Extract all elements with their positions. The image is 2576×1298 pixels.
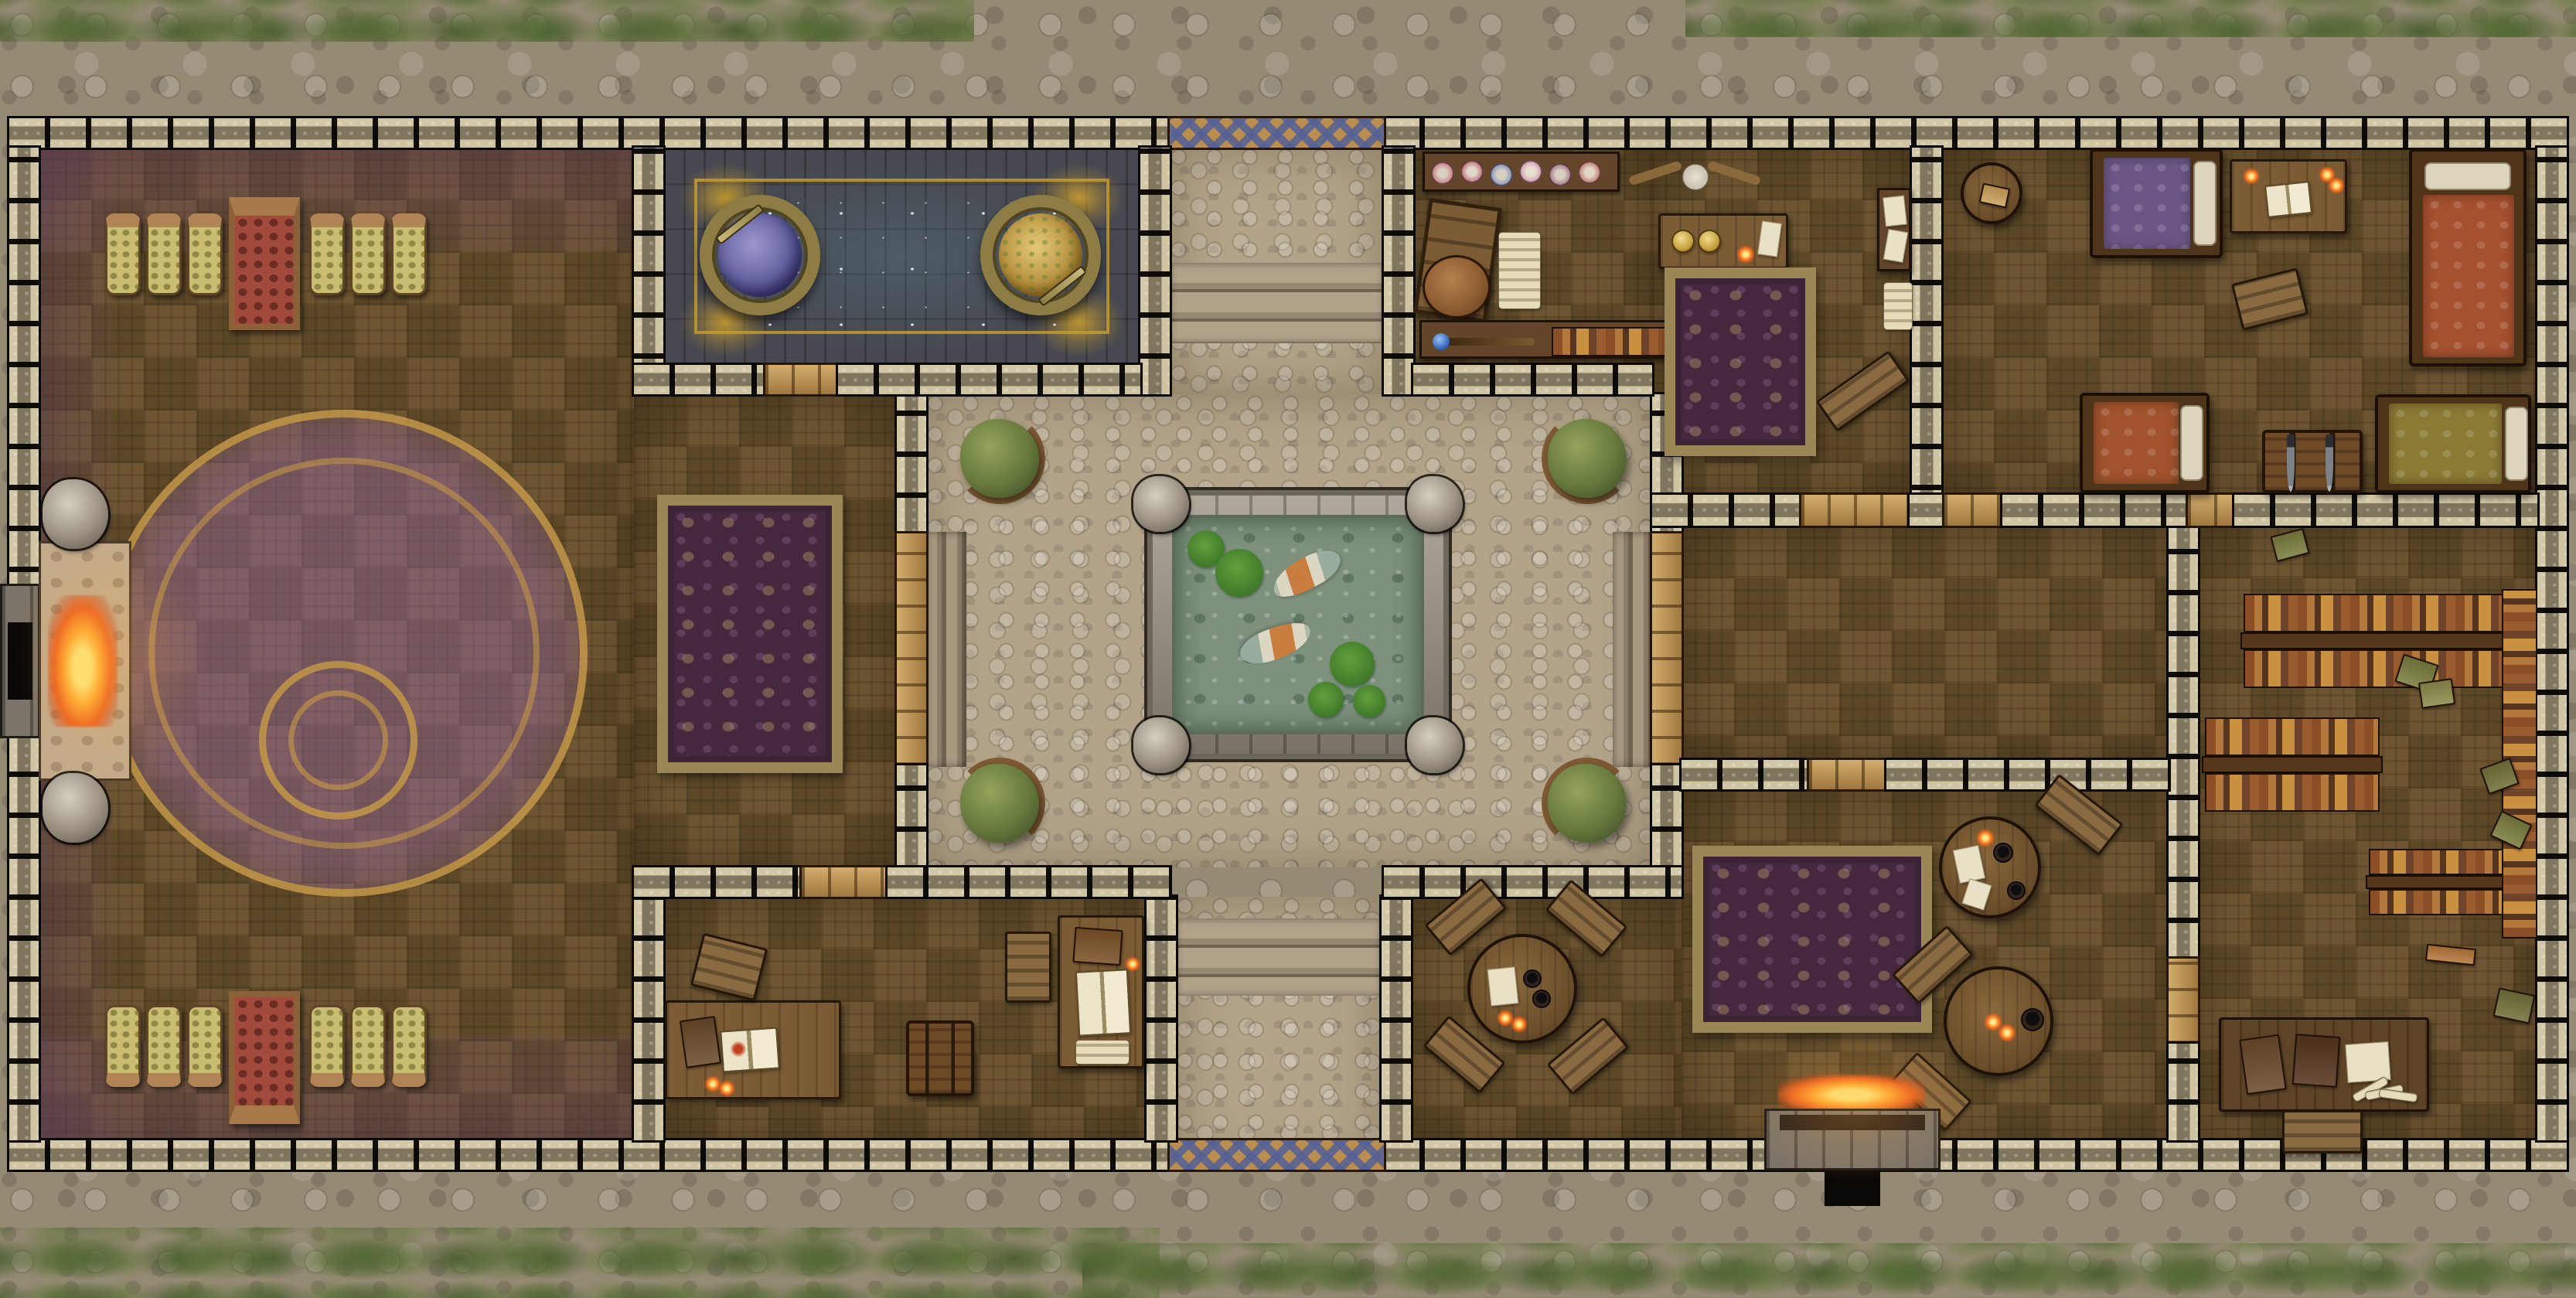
wall-dorm-south-mid xyxy=(2002,495,2188,526)
scroll-pile xyxy=(1075,1040,1130,1065)
wall-hall-shrine xyxy=(634,148,663,394)
plate xyxy=(1519,160,1542,183)
antler xyxy=(1628,160,1682,186)
wall-outer-right xyxy=(2537,148,2567,1140)
study-rug xyxy=(1665,267,1816,456)
hall-chair[interactable] xyxy=(350,213,386,295)
shelf-books xyxy=(2244,649,2503,688)
paper xyxy=(1883,196,1907,227)
hall-chair[interactable] xyxy=(105,213,141,295)
bed-blanket xyxy=(2104,158,2190,249)
hall-throne-north[interactable] xyxy=(229,197,300,330)
wand-orb xyxy=(1433,333,1450,350)
wall-shrine-south-w xyxy=(634,365,765,394)
bush-sw xyxy=(954,758,1045,849)
door-dorm-south[interactable] xyxy=(1944,495,2002,526)
shelf-rail xyxy=(2240,632,2506,649)
ritual-moon-ring-2 xyxy=(288,690,388,790)
bed-pillow xyxy=(2424,162,2511,190)
statue xyxy=(43,773,108,843)
office-bench[interactable] xyxy=(1005,932,1051,1003)
gargoyle-statue xyxy=(1407,717,1463,773)
plate xyxy=(1431,162,1454,185)
bed-blanket xyxy=(2423,195,2514,357)
dorm-bed-orange[interactable] xyxy=(2080,393,2210,493)
shelf-books xyxy=(2244,594,2503,632)
bed-blanket xyxy=(2094,402,2179,484)
open-book xyxy=(2264,181,2312,218)
mug xyxy=(2007,881,2026,900)
south-threshold[interactable] xyxy=(1170,1140,1384,1170)
terrestrial-globe[interactable] xyxy=(980,195,1101,315)
lily-pad xyxy=(1215,549,1263,597)
plate xyxy=(1578,161,1601,184)
study-antler-mount xyxy=(1624,155,1767,201)
library-chair[interactable] xyxy=(2282,1110,2363,1153)
grass-top-east xyxy=(1685,0,2576,37)
courtyard-steps-east xyxy=(1613,532,1653,767)
wall-corridor-study xyxy=(1384,148,1413,394)
celestial-globe[interactable] xyxy=(700,195,820,315)
north-corridor-steps xyxy=(1170,263,1384,343)
library-shelf-mid[interactable] xyxy=(2202,717,2383,813)
spellbook-sigil xyxy=(729,1040,748,1058)
book xyxy=(2292,1034,2340,1088)
hall-chair[interactable] xyxy=(391,1005,427,1087)
plate xyxy=(1549,163,1572,186)
book xyxy=(1072,927,1123,966)
bush xyxy=(1548,764,1627,843)
lily-pad xyxy=(1353,685,1385,717)
gargoyle-statue xyxy=(1133,717,1189,773)
candle-flame xyxy=(1976,829,1995,847)
wall-study-south-w xyxy=(1652,495,1801,526)
door-antechamber[interactable] xyxy=(1809,760,1886,789)
door-shrine[interactable] xyxy=(765,365,838,394)
hall-chair[interactable] xyxy=(105,1005,141,1087)
lily-pad xyxy=(1308,682,1344,717)
gargoyle-statue xyxy=(1407,476,1463,532)
wall-study-west-south xyxy=(1413,365,1652,394)
candle-flame xyxy=(718,1080,735,1097)
library-shelf-top[interactable] xyxy=(2240,594,2506,690)
open-ledger xyxy=(1075,969,1131,1036)
hall-chair[interactable] xyxy=(391,213,427,295)
sword xyxy=(2287,434,2295,492)
office-chest[interactable] xyxy=(906,1020,974,1096)
wall-library-west-n xyxy=(2169,495,2198,959)
candle-flame xyxy=(1736,245,1755,264)
loose-book[interactable] xyxy=(2418,678,2455,709)
plate xyxy=(1460,160,1484,183)
north-threshold[interactable] xyxy=(1170,118,1384,148)
dorm-bed-purple[interactable] xyxy=(2090,148,2223,258)
pond xyxy=(1147,490,1449,759)
paper xyxy=(1883,229,1909,263)
study-plate-shelf[interactable] xyxy=(1423,152,1620,192)
door-dorm-library[interactable] xyxy=(2188,495,2234,526)
bush-nw xyxy=(954,413,1045,504)
gargoyle-statue xyxy=(1133,476,1189,532)
wall-outer-top-west xyxy=(9,118,1170,148)
paper xyxy=(1961,878,1992,911)
bed-pillow xyxy=(2193,161,2217,246)
lily-pad xyxy=(1330,642,1375,686)
wall-outer-bottom-east xyxy=(1384,1140,2567,1170)
book xyxy=(680,1016,721,1068)
bush xyxy=(960,419,1039,498)
candle-flame xyxy=(2243,168,2260,185)
hall-rug xyxy=(657,495,843,773)
wall-scorr-west xyxy=(1147,897,1176,1140)
shelf-books xyxy=(1552,327,1668,356)
hall-chair[interactable] xyxy=(187,213,223,295)
grass-top-west xyxy=(0,0,974,42)
common-rug xyxy=(1692,846,1932,1033)
scale-pan xyxy=(1698,230,1721,253)
door-library[interactable] xyxy=(2169,959,2198,1044)
dorm-bed-olive[interactable] xyxy=(2375,394,2531,493)
library-desk[interactable] xyxy=(2219,1017,2429,1112)
wall-hall-office xyxy=(634,867,663,1140)
scale-pan xyxy=(1671,230,1695,253)
wall-office-north-e xyxy=(888,867,1170,897)
mug xyxy=(1993,843,2013,863)
mug xyxy=(1532,990,1551,1008)
dorm-desk[interactable] xyxy=(2230,159,2347,233)
bush-ne xyxy=(1542,413,1633,504)
mug xyxy=(1523,969,1542,988)
study-wand-shelf[interactable] xyxy=(1419,320,1675,359)
study-scrolls[interactable] xyxy=(1498,232,1541,309)
wall-courtyard-south-e xyxy=(1384,867,1682,897)
dorm-chest[interactable] xyxy=(2262,430,2363,493)
common-table-west[interactable] xyxy=(1467,934,1577,1044)
shelf-rail xyxy=(2202,756,2383,773)
wall-library-west-s xyxy=(2169,1044,2198,1140)
wall-antechamber-e xyxy=(1886,760,2169,789)
door-office[interactable] xyxy=(802,867,888,897)
wall-office-north-w xyxy=(634,867,802,897)
wall-dorm-south-e xyxy=(2234,495,2537,526)
hall-chair[interactable] xyxy=(187,1005,223,1087)
wall-shrine-south-e xyxy=(838,365,1140,394)
bush xyxy=(960,764,1039,843)
candle-flame xyxy=(2328,177,2345,194)
book xyxy=(2239,1034,2287,1095)
shelf-books xyxy=(2205,773,2380,812)
wall-study-dorm xyxy=(1912,148,1941,526)
hall-throne-south[interactable] xyxy=(229,991,300,1124)
office-desk-east[interactable] xyxy=(1058,915,1144,1068)
south-corridor-steps xyxy=(1176,918,1382,996)
wall-courtyard-west-s xyxy=(897,765,926,867)
wall-outer-top-east xyxy=(1384,118,2567,148)
courtyard-steps-west xyxy=(926,532,966,767)
study-side-shelf[interactable] xyxy=(1877,188,1911,271)
paper xyxy=(1757,220,1782,257)
pan xyxy=(2021,1008,2044,1031)
scroll-tube xyxy=(2378,1088,2418,1103)
dorm-bed-red[interactable] xyxy=(2409,148,2527,366)
floor-antechamber xyxy=(1682,526,2169,760)
hall-chair[interactable] xyxy=(309,213,345,295)
dorm-side-table[interactable] xyxy=(1961,162,2022,224)
wall-study-dorm-junction xyxy=(1910,495,1944,526)
book xyxy=(1979,183,2011,209)
grass-bottom-east xyxy=(1082,1243,2576,1298)
door-courtyard-east[interactable] xyxy=(1652,533,1682,765)
wall-shrine-corridor xyxy=(1140,148,1170,394)
study-teapot[interactable] xyxy=(1423,255,1491,319)
battlemap-canvas xyxy=(0,0,2576,1298)
study-papers[interactable] xyxy=(1883,282,1913,330)
grass-bottom-west xyxy=(0,1228,1160,1298)
common-table-ne[interactable] xyxy=(1939,816,2041,918)
antler xyxy=(1707,160,1761,186)
plate xyxy=(1490,163,1513,186)
hall-chair[interactable] xyxy=(146,1005,182,1087)
common-fire-halo xyxy=(1739,1028,1971,1183)
bed-pillow xyxy=(2180,405,2203,481)
sword xyxy=(2326,434,2333,492)
paper xyxy=(1487,966,1519,1007)
wall-courtyard-east-s xyxy=(1652,765,1682,867)
skull xyxy=(1682,164,1709,190)
door-study-south[interactable] xyxy=(1801,495,1910,526)
office-desk[interactable] xyxy=(665,1000,841,1099)
door-courtyard-west[interactable] xyxy=(897,533,926,765)
candle-flame xyxy=(1998,1024,2016,1042)
hall-chair[interactable] xyxy=(350,1005,386,1087)
wall-outer-bottom-west xyxy=(9,1140,1170,1170)
bush-se xyxy=(1542,758,1633,849)
wall-scorr-east xyxy=(1382,897,1411,1140)
bed-blanket xyxy=(2389,404,2502,484)
wand xyxy=(1443,338,1535,346)
candle-flame xyxy=(1511,1016,1528,1033)
hall-chair[interactable] xyxy=(146,213,182,295)
study-desk[interactable] xyxy=(1658,213,1788,269)
wall-courtyard-west-n xyxy=(897,394,926,533)
shelf-books xyxy=(2205,717,2380,756)
wall-antechamber-w xyxy=(1682,760,1809,789)
hall-chair[interactable] xyxy=(309,1005,345,1087)
bed-pillow xyxy=(2505,407,2528,481)
bush xyxy=(1548,419,1627,498)
fireplace-halo xyxy=(15,533,209,781)
